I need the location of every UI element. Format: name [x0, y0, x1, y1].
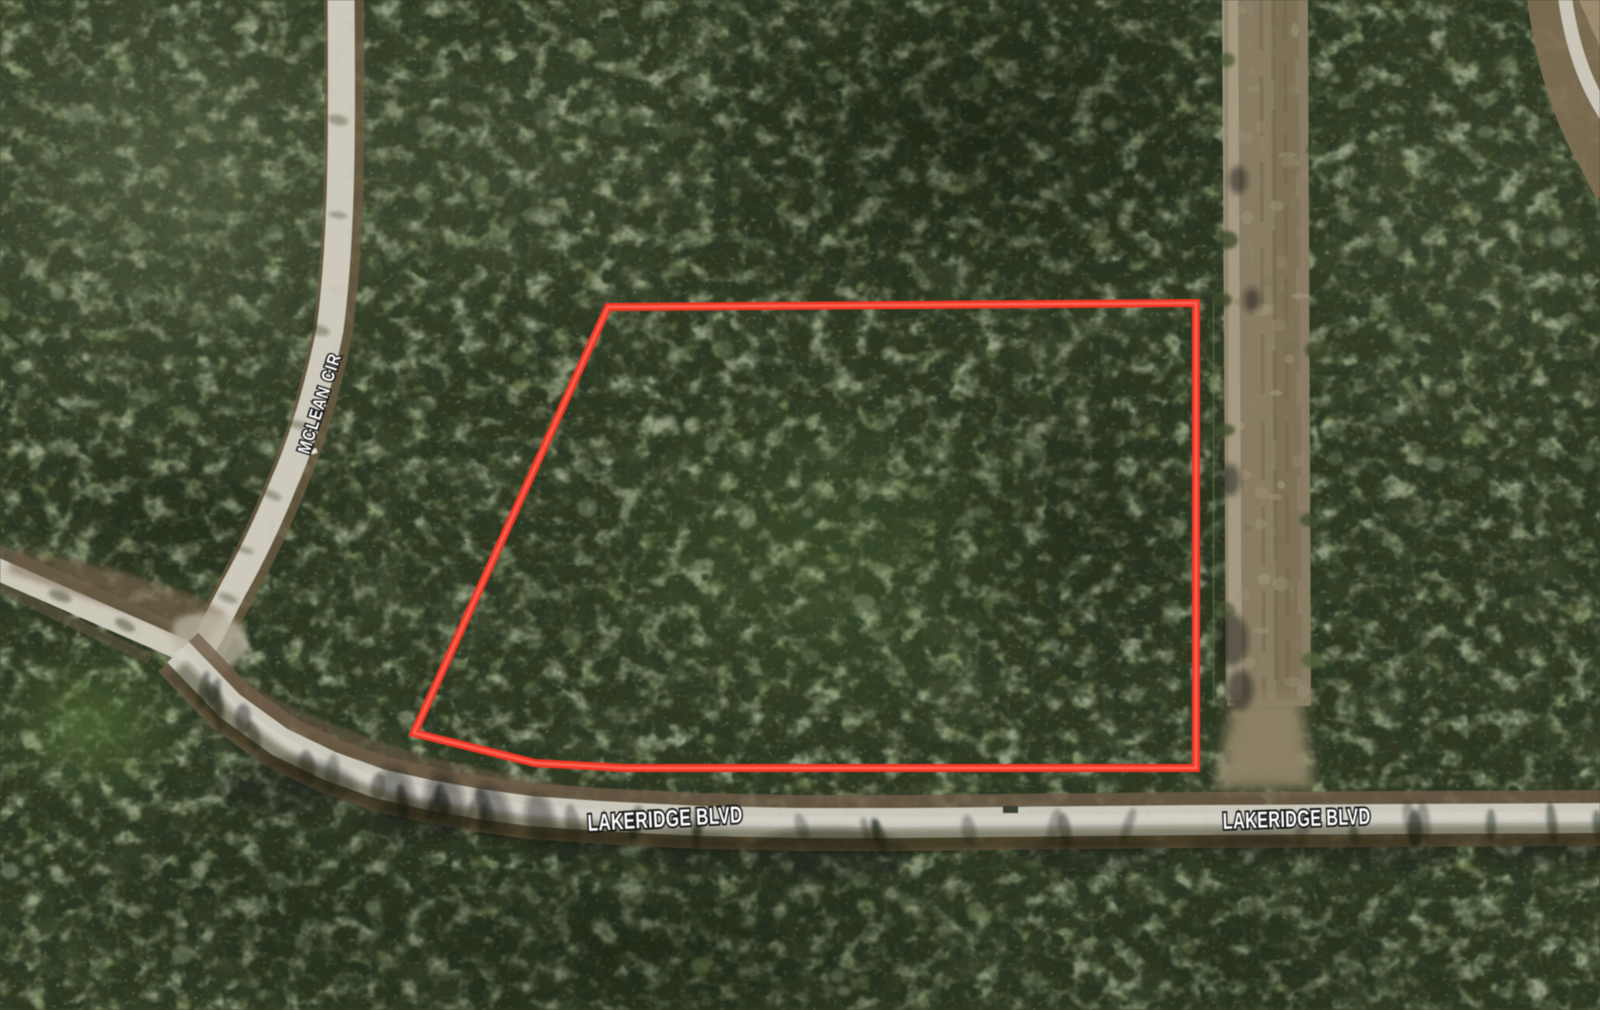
svg-text:LAKERIDGE BLVD: LAKERIDGE BLVD [1222, 804, 1371, 835]
